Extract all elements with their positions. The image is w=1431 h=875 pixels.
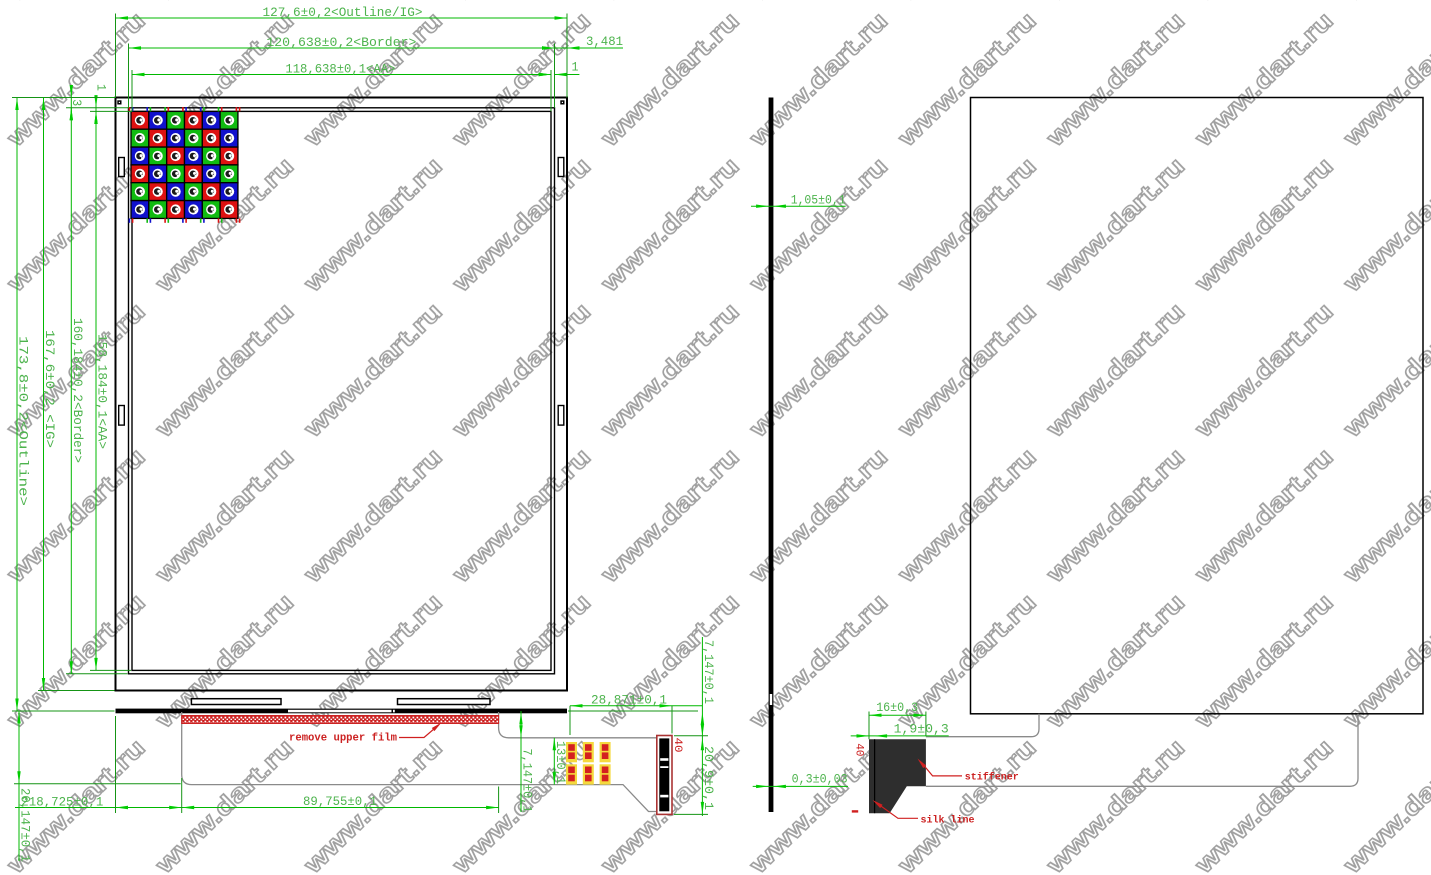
svg-text:28,871±0,1: 28,871±0,1 bbox=[591, 693, 667, 707]
svg-text:118,638±0,1<AA>: 118,638±0,1<AA> bbox=[285, 62, 395, 76]
svg-text:silk line: silk line bbox=[921, 814, 975, 826]
svg-text:173,8±0,2<Outline>: 173,8±0,2<Outline> bbox=[16, 336, 30, 506]
svg-text:1: 1 bbox=[94, 84, 108, 91]
svg-text:89,755±0,1: 89,755±0,1 bbox=[303, 795, 377, 809]
svg-text:3: 3 bbox=[69, 99, 83, 106]
svg-text:13±0,1: 13±0,1 bbox=[553, 741, 567, 784]
svg-text:16±0,3: 16±0,3 bbox=[876, 701, 918, 715]
svg-text:218,725±0,1: 218,725±0,1 bbox=[21, 795, 103, 809]
svg-text:40: 40 bbox=[853, 743, 865, 756]
svg-text:160,184±0,2<Border>: 160,184±0,2<Border> bbox=[70, 318, 84, 463]
svg-text:7,147±0,1: 7,147±0,1 bbox=[520, 749, 534, 813]
svg-text:3,481: 3,481 bbox=[586, 35, 623, 49]
svg-text:120,638±0,2<Border>: 120,638±0,2<Border> bbox=[266, 36, 416, 50]
svg-text:1,05±0,1: 1,05±0,1 bbox=[791, 193, 846, 207]
svg-text:stiffener: stiffener bbox=[965, 771, 1019, 783]
svg-text:40: 40 bbox=[671, 738, 683, 753]
svg-text:158,184±0,1<AA>: 158,184±0,1<AA> bbox=[95, 334, 109, 449]
svg-text:20,9±0,1: 20,9±0,1 bbox=[701, 746, 715, 810]
svg-text:1: 1 bbox=[572, 61, 579, 75]
svg-text:0,3±0,03: 0,3±0,03 bbox=[792, 772, 848, 786]
svg-text:remove upper film: remove upper film bbox=[289, 733, 397, 745]
svg-text:7,147±0,1: 7,147±0,1 bbox=[701, 640, 715, 704]
svg-text:127,6±0,2<Outline/IG>: 127,6±0,2<Outline/IG> bbox=[263, 6, 423, 20]
svg-text:1,9±0,3: 1,9±0,3 bbox=[894, 723, 949, 737]
svg-text:167,6±0,2 <IG>: 167,6±0,2 <IG> bbox=[42, 330, 56, 448]
